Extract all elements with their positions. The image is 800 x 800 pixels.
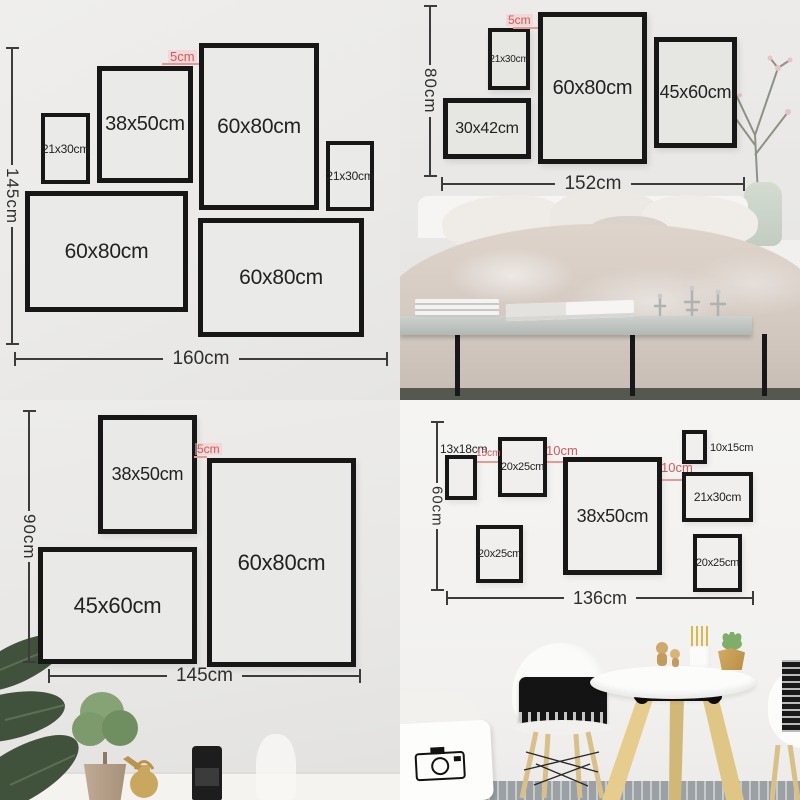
picture-frame: 20x25cm	[476, 525, 523, 583]
frame-size-label: 60x80cm	[553, 77, 633, 100]
gap-connector-line	[513, 27, 538, 29]
frames-layer: 21x30cm60x80cm45x60cm30x42cm5cm	[400, 0, 800, 400]
quadrant-layout-152cm-bedroom: 21x30cm60x80cm45x60cm30x42cm5cm 80cm 152…	[400, 0, 800, 400]
picture-frame: 21x30cm	[682, 472, 753, 522]
dimension-tick	[424, 175, 437, 177]
frame-size-label: 38x50cm	[577, 506, 649, 527]
frame-size-label: 60x80cm	[65, 240, 149, 264]
picture-frame: 38x50cm	[97, 66, 193, 183]
gap-distance-label: 15cm	[476, 449, 500, 459]
picture-frame: 13x18cm	[445, 455, 477, 500]
gap-connector-line	[477, 461, 498, 463]
horizontal-dimension-label: 145cm	[176, 665, 233, 687]
frame-size-label: 20x25cm	[478, 548, 521, 560]
vertical-dimension: 80cm	[423, 5, 437, 177]
picture-frame: 21x30cm	[41, 113, 90, 184]
quadrant-layout-136cm-dining: 13x18cm20x25cm38x50cm10x15cm21x30cm20x25…	[400, 400, 800, 800]
dimension-line	[429, 7, 431, 65]
horizontal-dimension: 160cm	[14, 351, 388, 367]
gap-distance-label: 10cm	[546, 444, 578, 457]
horizontal-dimension: 136cm	[446, 590, 754, 606]
horizontal-dimension-label: 136cm	[573, 588, 627, 609]
frame-size-label: 38x50cm	[112, 464, 184, 485]
frame-size-label: 21x30cm	[42, 142, 89, 156]
picture-frame: 60x80cm	[199, 43, 319, 210]
vertical-dimension: 90cm	[22, 410, 36, 663]
dimension-line	[242, 675, 359, 677]
picture-frame: 60x80cm	[207, 458, 356, 667]
horizontal-dimension: 152cm	[441, 176, 745, 192]
picture-frame: 38x50cm	[563, 457, 662, 575]
dimension-line	[448, 597, 564, 599]
frame-size-label: 20x25cm	[501, 461, 544, 473]
picture-frame: 21x30cm	[326, 141, 374, 211]
frame-size-label: 21x30cm	[326, 169, 373, 183]
frame-size-label: 38x50cm	[105, 113, 185, 136]
gap-connector-line	[194, 456, 207, 458]
picture-frame: 20x25cm	[498, 437, 547, 497]
dimension-tick	[359, 669, 361, 683]
gap-distance-label: 5cm	[195, 443, 222, 455]
dimension-line	[636, 597, 752, 599]
dimension-tick	[743, 177, 745, 191]
picture-frame: 10x15cm	[682, 430, 707, 464]
vertical-dimension: 145cm	[5, 47, 19, 345]
vertical-dimension-label: 80cm	[420, 68, 440, 114]
dimension-line	[11, 49, 13, 165]
vertical-dimension-label: 90cm	[19, 514, 39, 560]
gap-connector-line	[662, 479, 682, 481]
dimension-line	[436, 529, 438, 589]
picture-frame: 38x50cm	[98, 415, 197, 534]
picture-frame: 60x80cm	[538, 12, 647, 164]
dimension-line	[28, 562, 30, 661]
gap-distance-label: 5cm	[168, 50, 197, 63]
dimension-line	[11, 227, 13, 343]
picture-frame: 45x60cm	[38, 547, 197, 664]
horizontal-dimension-label: 160cm	[172, 348, 229, 370]
picture-frame: 20x25cm	[693, 534, 742, 592]
dimension-line	[443, 183, 555, 185]
gap-distance-label: 10cm	[661, 461, 693, 474]
horizontal-dimension: 145cm	[48, 668, 361, 684]
vertical-dimension-label: 60cm	[429, 486, 446, 527]
dimension-tick	[386, 352, 388, 366]
frame-size-label: 21x30cm	[694, 490, 741, 504]
picture-frame: 21x30cm	[488, 28, 530, 90]
vertical-dimension: 60cm	[430, 421, 444, 591]
frame-size-label: 20x25cm	[696, 557, 739, 569]
dimension-line	[16, 358, 163, 360]
dimension-line	[50, 675, 167, 677]
vertical-dimension-label: 145cm	[2, 168, 22, 224]
gap-connector-line	[162, 63, 199, 65]
frame-size-label: 45x60cm	[660, 82, 732, 103]
gap-distance-label: 5cm	[506, 14, 533, 26]
dimension-line	[631, 183, 743, 185]
dimension-line	[436, 423, 438, 483]
dimension-line	[429, 117, 431, 175]
frame-size-label: 10x15cm	[710, 442, 753, 454]
frame-size-guide-collage: 21x30cm38x50cm60x80cm21x30cm60x80cm60x80…	[0, 0, 800, 800]
picture-frame: 30x42cm	[443, 98, 531, 159]
frames-layer: 38x50cm60x80cm45x60cm5cm	[0, 400, 400, 800]
frame-size-label: 60x80cm	[217, 115, 301, 139]
picture-frame: 45x60cm	[654, 37, 737, 148]
picture-frame: 60x80cm	[198, 218, 364, 337]
frame-size-label: 21x30cm	[489, 54, 528, 65]
dimension-line	[28, 412, 30, 511]
quadrant-layout-160cm: 21x30cm38x50cm60x80cm21x30cm60x80cm60x80…	[0, 0, 400, 400]
frame-size-label: 45x60cm	[74, 593, 162, 619]
horizontal-dimension-label: 152cm	[564, 173, 621, 195]
frame-size-label: 60x80cm	[238, 550, 326, 576]
dimension-tick	[6, 343, 19, 345]
dimension-line	[239, 358, 386, 360]
frame-size-label: 30x42cm	[455, 120, 519, 138]
picture-frame: 60x80cm	[25, 191, 188, 312]
frames-layer: 21x30cm38x50cm60x80cm21x30cm60x80cm60x80…	[0, 0, 400, 400]
dimension-tick	[752, 591, 754, 605]
quadrant-layout-145cm: 38x50cm60x80cm45x60cm5cm 90cm 145cm	[0, 400, 400, 800]
gap-connector-line	[547, 461, 563, 463]
dimension-tick	[23, 661, 36, 663]
frame-size-label: 60x80cm	[239, 266, 323, 290]
dimension-tick	[431, 589, 444, 591]
